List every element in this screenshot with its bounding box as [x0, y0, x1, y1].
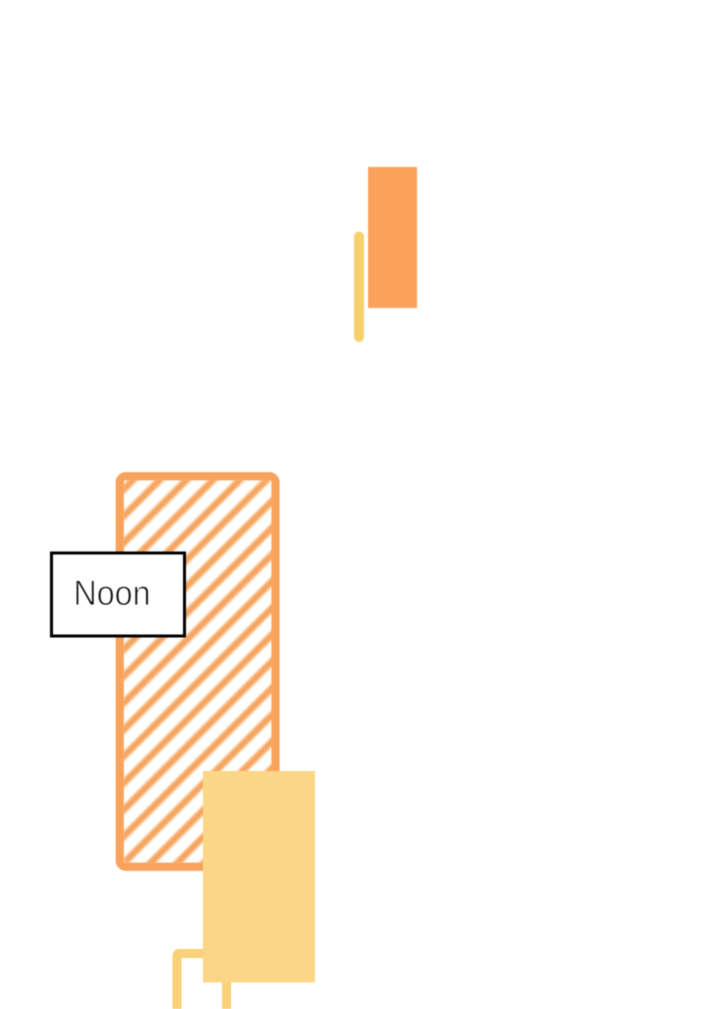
svg-text:Noon: Noon [74, 574, 151, 613]
